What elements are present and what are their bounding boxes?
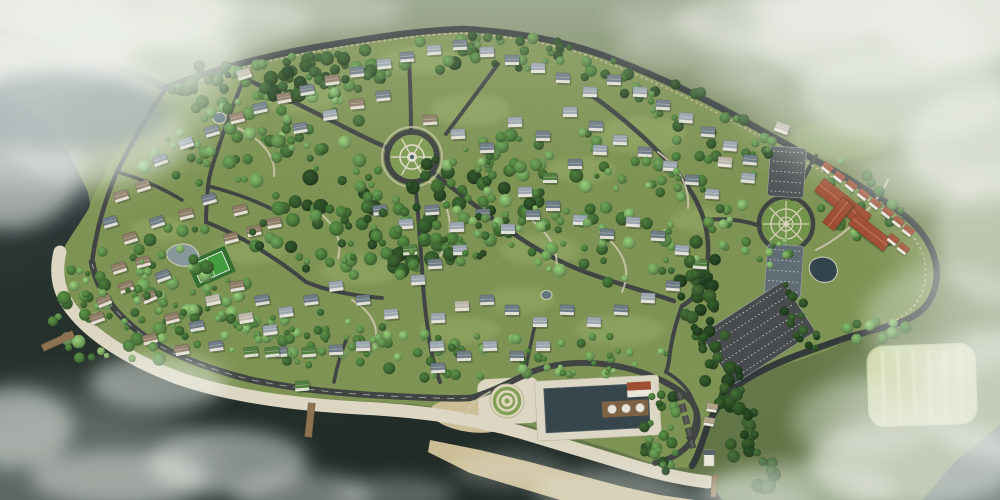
film-grain [0, 0, 1000, 500]
aerial-render-community-masterplan [0, 0, 1000, 500]
scene-svg [0, 0, 1000, 500]
